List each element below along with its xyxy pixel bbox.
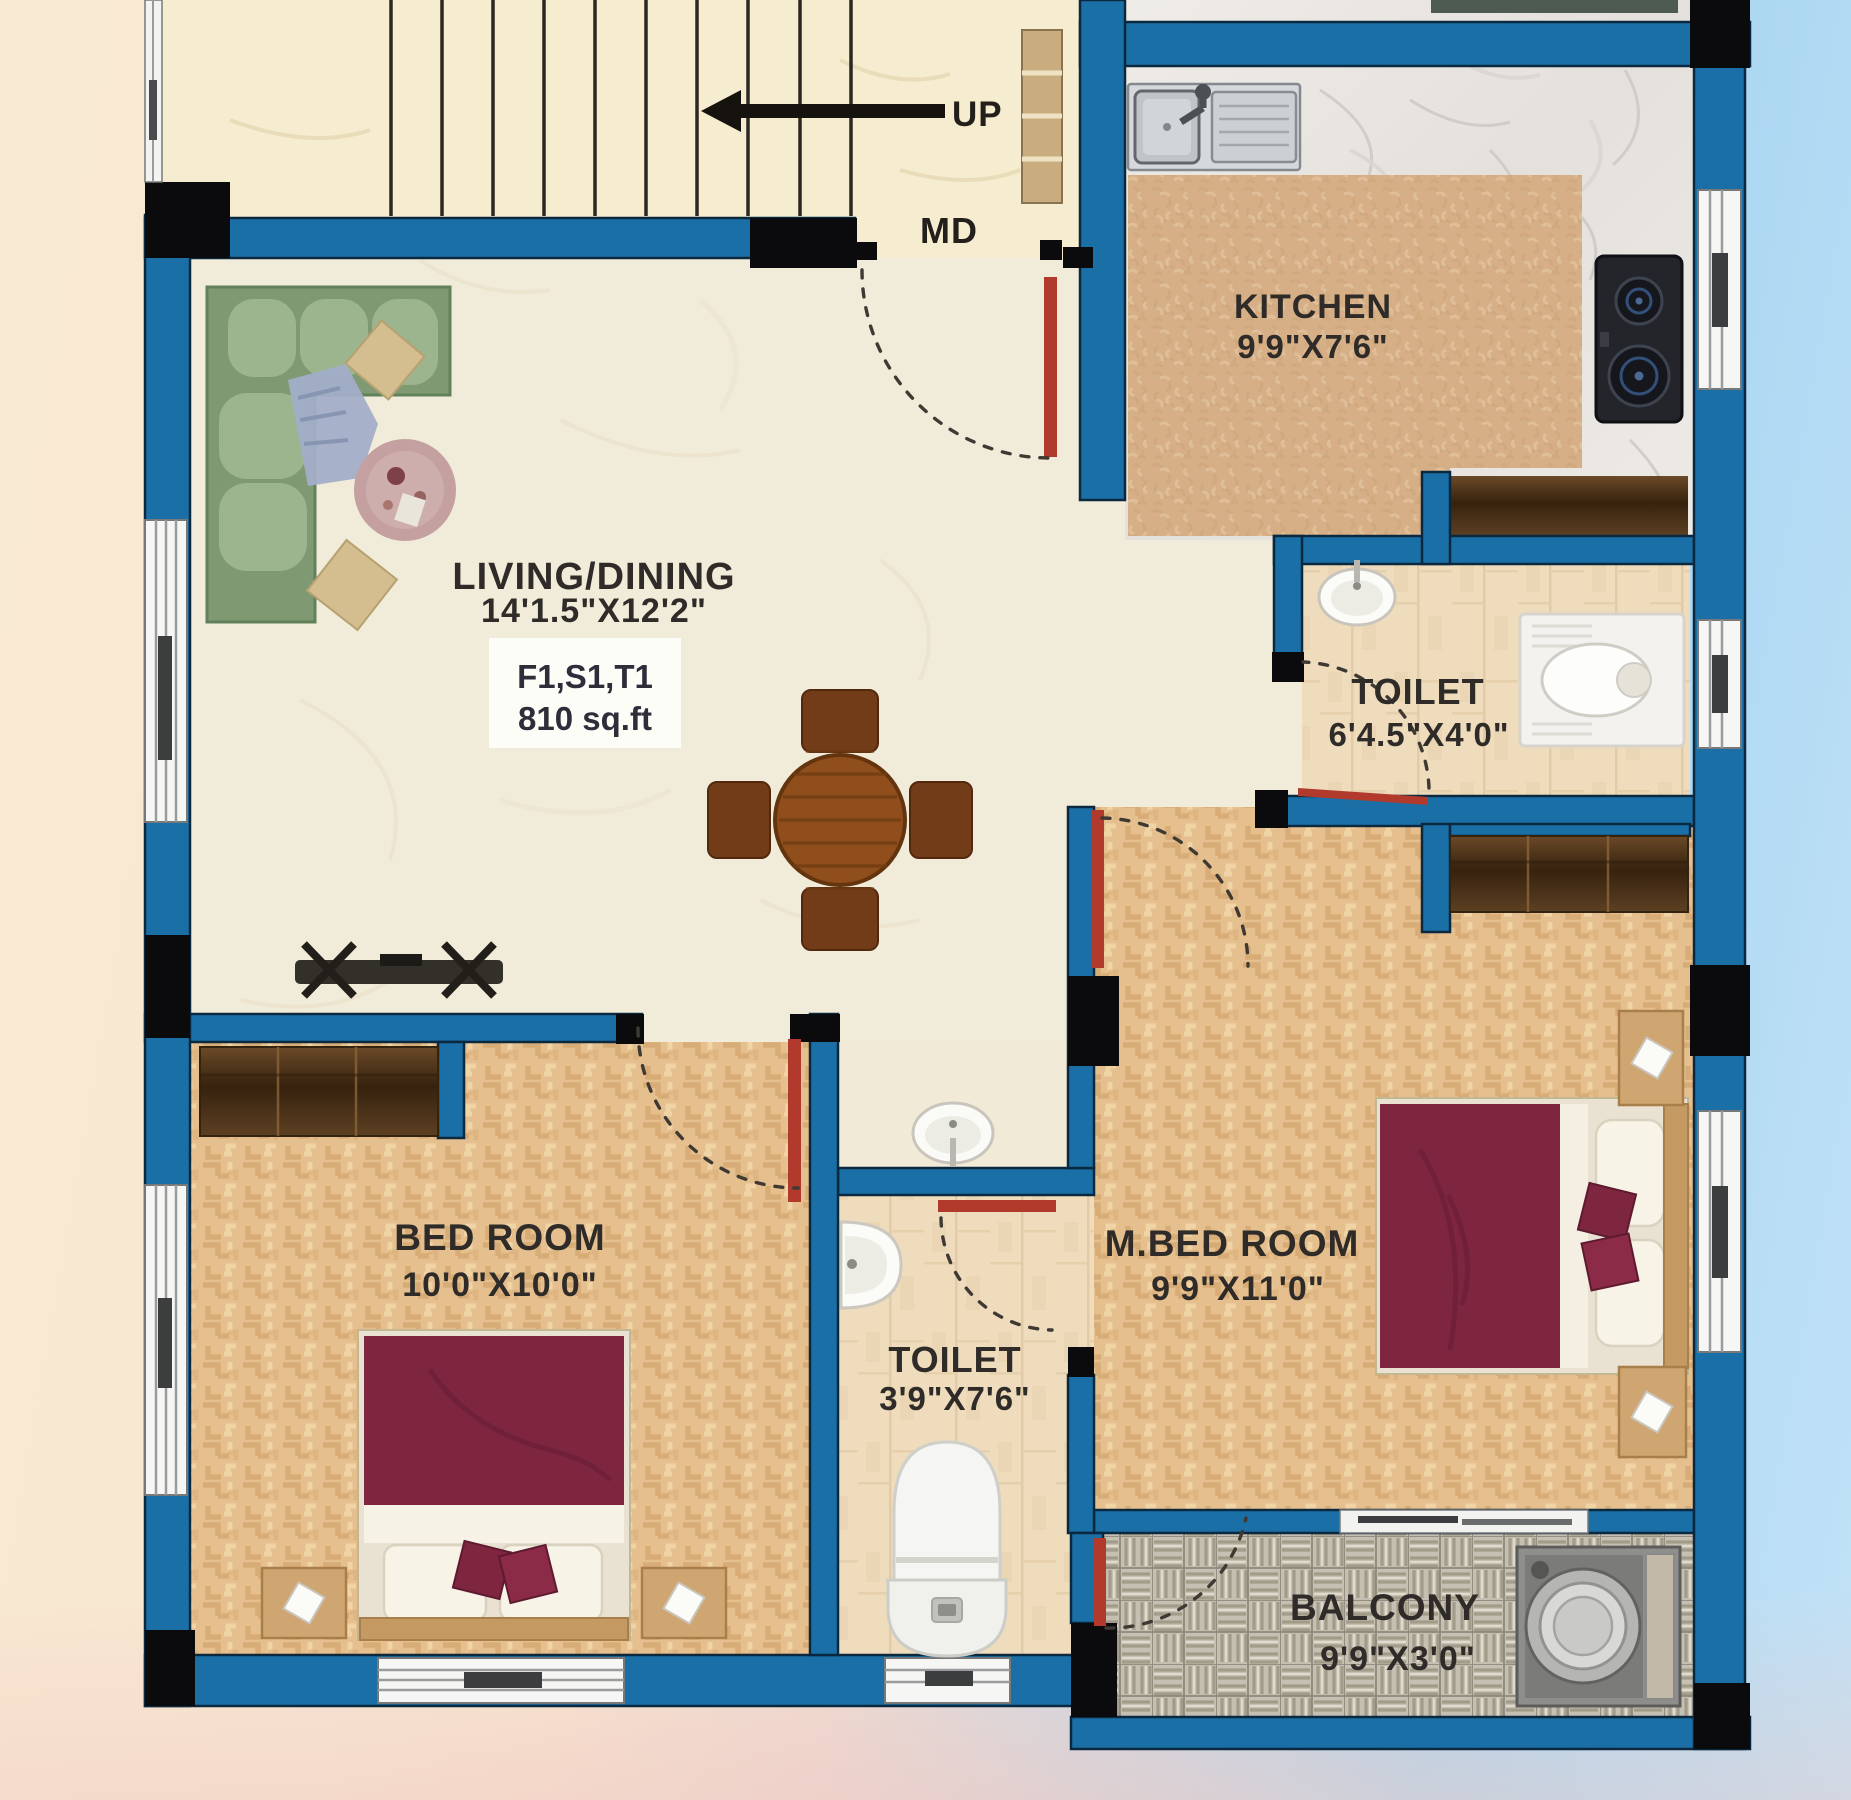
svg-text:KITCHEN: KITCHEN bbox=[1234, 288, 1392, 326]
svg-text:F1,S1,T1: F1,S1,T1 bbox=[517, 658, 653, 695]
svg-text:10'0"X10'0": 10'0"X10'0" bbox=[402, 1266, 598, 1304]
svg-text:9'9"X3'0": 9'9"X3'0" bbox=[1320, 1640, 1476, 1678]
svg-text:TOILET: TOILET bbox=[1351, 671, 1484, 712]
svg-text:14'1.5"X12'2": 14'1.5"X12'2" bbox=[481, 592, 707, 630]
svg-text:9'9"X11'0": 9'9"X11'0" bbox=[1151, 1270, 1325, 1308]
svg-text:9'9"X7'6": 9'9"X7'6" bbox=[1237, 328, 1388, 365]
svg-text:BED ROOM: BED ROOM bbox=[394, 1217, 606, 1258]
svg-text:BALCONY: BALCONY bbox=[1290, 1587, 1480, 1628]
svg-text:TOILET: TOILET bbox=[888, 1339, 1021, 1380]
svg-text:M.BED ROOM: M.BED ROOM bbox=[1105, 1223, 1360, 1264]
svg-text:810 sq.ft: 810 sq.ft bbox=[518, 700, 652, 737]
svg-text:MD: MD bbox=[920, 210, 978, 251]
svg-text:3'9"X7'6": 3'9"X7'6" bbox=[879, 1380, 1030, 1417]
svg-text:6'4.5"X4'0": 6'4.5"X4'0" bbox=[1329, 716, 1510, 753]
svg-text:UP: UP bbox=[952, 95, 1003, 134]
